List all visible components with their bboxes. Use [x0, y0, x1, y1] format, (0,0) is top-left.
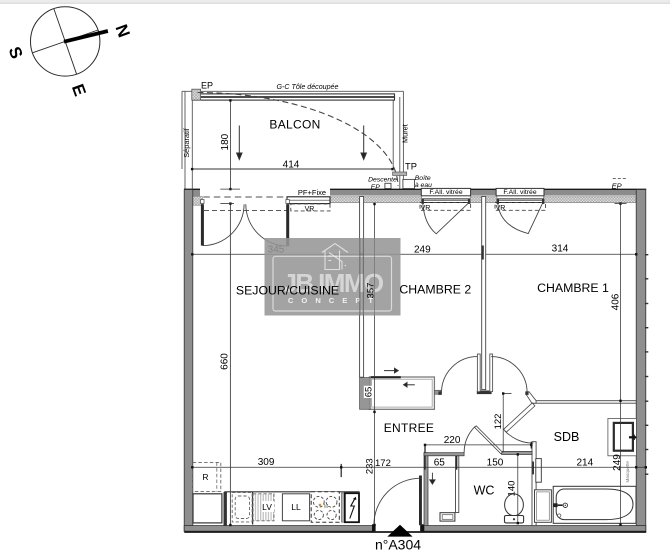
svg-text:65: 65 [434, 457, 446, 468]
svg-text:LL: LL [291, 502, 301, 512]
svg-text:EP: EP [612, 181, 622, 190]
svg-text:357: 357 [365, 283, 376, 299]
svg-text:F.All. vitrée: F.All. vitrée [429, 189, 462, 196]
svg-text:EP: EP [201, 81, 213, 91]
svg-text:140: 140 [507, 481, 518, 497]
svg-text:SEJOUR/CUISINE: SEJOUR/CUISINE [236, 284, 339, 298]
svg-text:BALCON: BALCON [269, 117, 320, 131]
svg-text:n°A304: n°A304 [375, 536, 421, 552]
svg-text:SDB: SDB [554, 430, 580, 444]
svg-text:660: 660 [220, 353, 231, 370]
svg-text:LV: LV [262, 502, 272, 512]
svg-text:249: 249 [612, 454, 623, 471]
svg-text:CHAMBRE 2: CHAMBRE 2 [399, 282, 471, 296]
svg-text:Séparatif: Séparatif [182, 127, 191, 158]
svg-text:CHAMBRE 1: CHAMBRE 1 [537, 281, 609, 295]
svg-text:Boîte: Boîte [415, 175, 431, 182]
svg-text:314: 314 [552, 244, 569, 255]
svg-text:309: 309 [258, 457, 275, 468]
svg-text:180: 180 [220, 133, 231, 150]
svg-text:406: 406 [611, 293, 622, 310]
svg-text:VR: VR [305, 206, 315, 213]
svg-text:à eau: à eau [415, 182, 432, 189]
svg-text:TP: TP [405, 162, 417, 172]
svg-text:214: 214 [576, 457, 593, 468]
svg-text:220: 220 [444, 435, 461, 446]
svg-text:WC: WC [474, 483, 495, 497]
svg-text:VR: VR [496, 205, 506, 212]
svg-text:PF+Fixe: PF+Fixe [298, 188, 326, 197]
svg-text:ENTREE: ENTREE [384, 421, 434, 435]
svg-text:Descente: Descente [368, 177, 397, 184]
svg-text:65: 65 [364, 387, 375, 398]
svg-text:Muret: Muret [400, 124, 409, 143]
svg-text:VR: VR [421, 205, 431, 212]
svg-text:R: R [202, 472, 208, 482]
svg-text:150: 150 [487, 457, 504, 468]
svg-text:F.All. vitrée: F.All. vitrée [503, 189, 536, 196]
svg-text:414: 414 [283, 159, 300, 170]
svg-text:M: M [324, 504, 329, 510]
svg-text:249: 249 [414, 244, 431, 255]
svg-text:G-C Tôle découpée: G-C Tôle découpée [277, 83, 339, 91]
svg-text:122: 122 [493, 414, 504, 430]
svg-text:Masquette: Masquette [625, 461, 630, 483]
